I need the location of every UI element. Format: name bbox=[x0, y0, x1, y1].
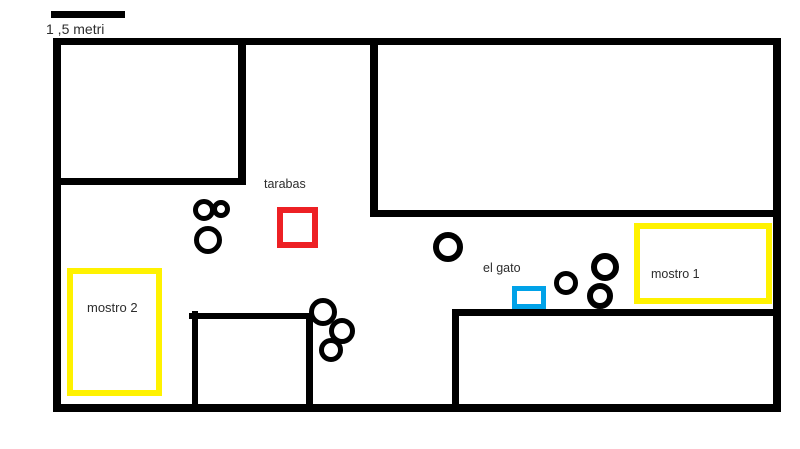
bottom-right-room-wall-left bbox=[452, 309, 459, 411]
scale-bar bbox=[51, 11, 125, 18]
floorplan-canvas: 1 ,5 metri tarabas el gato mostro 1 most… bbox=[0, 0, 800, 449]
top-left-room-wall-bottom bbox=[53, 178, 246, 185]
middle-room-wall-top bbox=[189, 313, 313, 319]
bottom-right-room-wall-top bbox=[452, 309, 781, 316]
outer-wall-left bbox=[53, 38, 61, 412]
circle-marker bbox=[591, 253, 619, 281]
mostro-1-box bbox=[634, 223, 772, 304]
outer-wall-bottom bbox=[53, 404, 781, 412]
el-gato-label: el gato bbox=[483, 261, 521, 276]
circle-marker bbox=[194, 226, 222, 254]
tarabas-box bbox=[277, 207, 318, 248]
circle-marker bbox=[554, 271, 578, 295]
el-gato-box bbox=[512, 286, 546, 309]
circle-marker bbox=[212, 200, 230, 218]
circle-marker bbox=[587, 283, 613, 309]
outer-wall-top bbox=[53, 38, 781, 45]
outer-wall-right bbox=[773, 38, 781, 412]
scale-label: 1 ,5 metri bbox=[46, 22, 104, 37]
mostro-2-box bbox=[67, 268, 162, 396]
circle-marker bbox=[433, 232, 463, 262]
tarabas-label: tarabas bbox=[264, 177, 306, 192]
circle-marker bbox=[319, 338, 343, 362]
mostro-1-label: mostro 1 bbox=[651, 267, 700, 282]
top-right-room-wall-left bbox=[370, 38, 378, 217]
middle-room-wall-left bbox=[192, 311, 198, 411]
top-right-room-wall-bottom bbox=[370, 210, 781, 217]
middle-room-wall-right bbox=[306, 313, 313, 411]
mostro-2-label: mostro 2 bbox=[87, 300, 138, 315]
top-left-room-wall-right bbox=[238, 38, 246, 185]
